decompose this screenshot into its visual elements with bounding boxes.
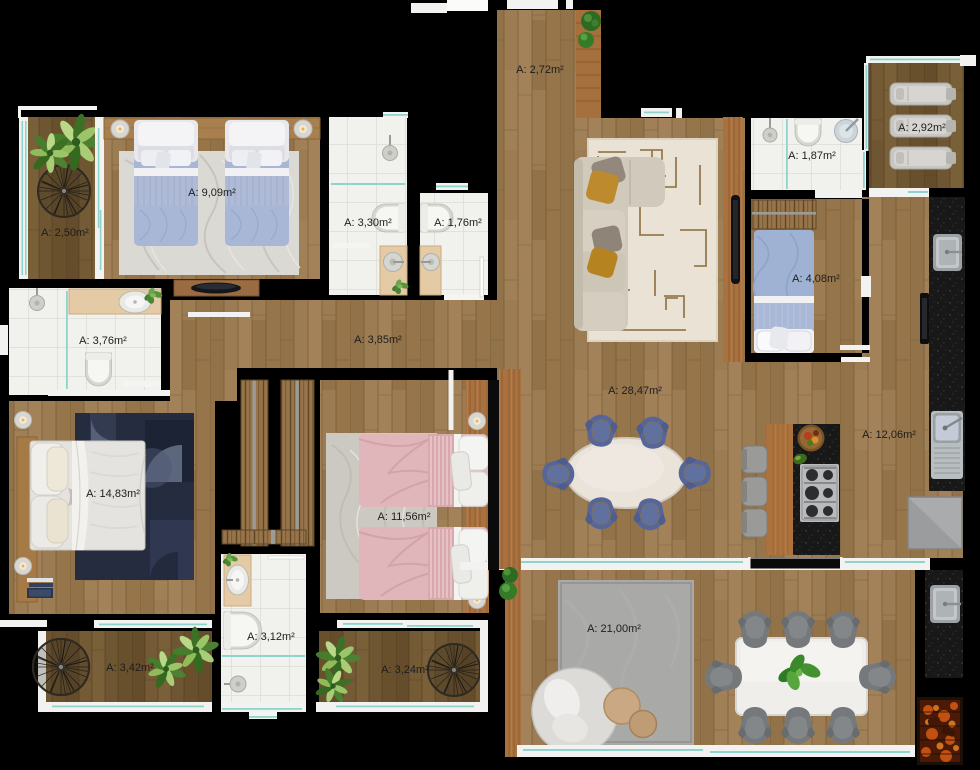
svg-text:A: 12,06m²: A: 12,06m² <box>862 429 916 441</box>
svg-text:A: 3,85m²: A: 3,85m² <box>354 334 402 346</box>
svg-text:A: 4,08m²: A: 4,08m² <box>792 273 840 285</box>
svg-text:A: 2,92m²: A: 2,92m² <box>898 122 946 134</box>
svg-text:A: 2,72m²: A: 2,72m² <box>516 64 564 76</box>
svg-text:A: 3,76m²: A: 3,76m² <box>79 335 127 347</box>
svg-text:A: 1,87m²: A: 1,87m² <box>788 150 836 162</box>
svg-text:A: 3,12m²: A: 3,12m² <box>247 631 295 643</box>
svg-text:A: 21,00m²: A: 21,00m² <box>587 623 641 635</box>
svg-text:A: 9,09m²: A: 9,09m² <box>188 187 236 199</box>
svg-text:A: 11,56m²: A: 11,56m² <box>378 511 431 523</box>
svg-text:A: 14,83m²: A: 14,83m² <box>86 488 140 500</box>
svg-text:A: 3,24m²: A: 3,24m² <box>381 664 429 676</box>
svg-text:A: 1,76m²: A: 1,76m² <box>434 217 482 229</box>
svg-text:A: 2,50m²: A: 2,50m² <box>41 227 89 239</box>
svg-text:A: 3,42m²: A: 3,42m² <box>106 662 154 674</box>
svg-text:A: 28,47m²: A: 28,47m² <box>608 385 662 397</box>
svg-text:A: 3,30m²: A: 3,30m² <box>344 217 392 229</box>
